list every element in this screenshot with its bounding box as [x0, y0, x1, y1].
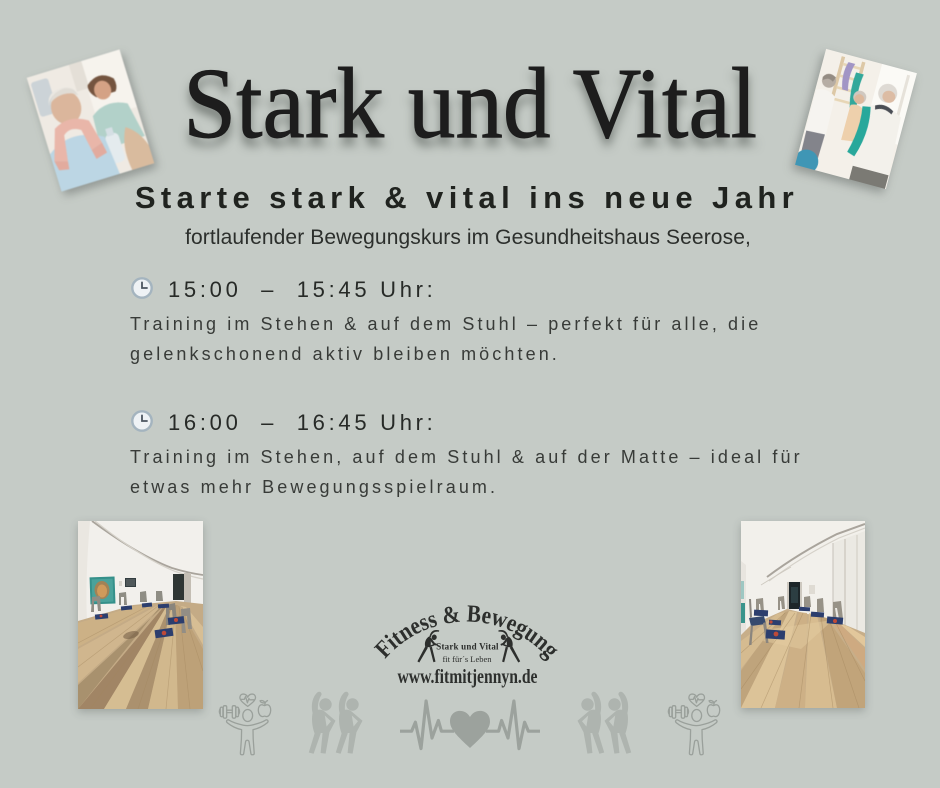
svg-text:Stark und Vital: Stark und Vital — [436, 642, 499, 652]
svg-text:fit für´s Leben: fit für´s Leben — [442, 654, 492, 664]
svg-text:www.fitmitjennyn.de: www.fitmitjennyn.de — [398, 666, 538, 688]
